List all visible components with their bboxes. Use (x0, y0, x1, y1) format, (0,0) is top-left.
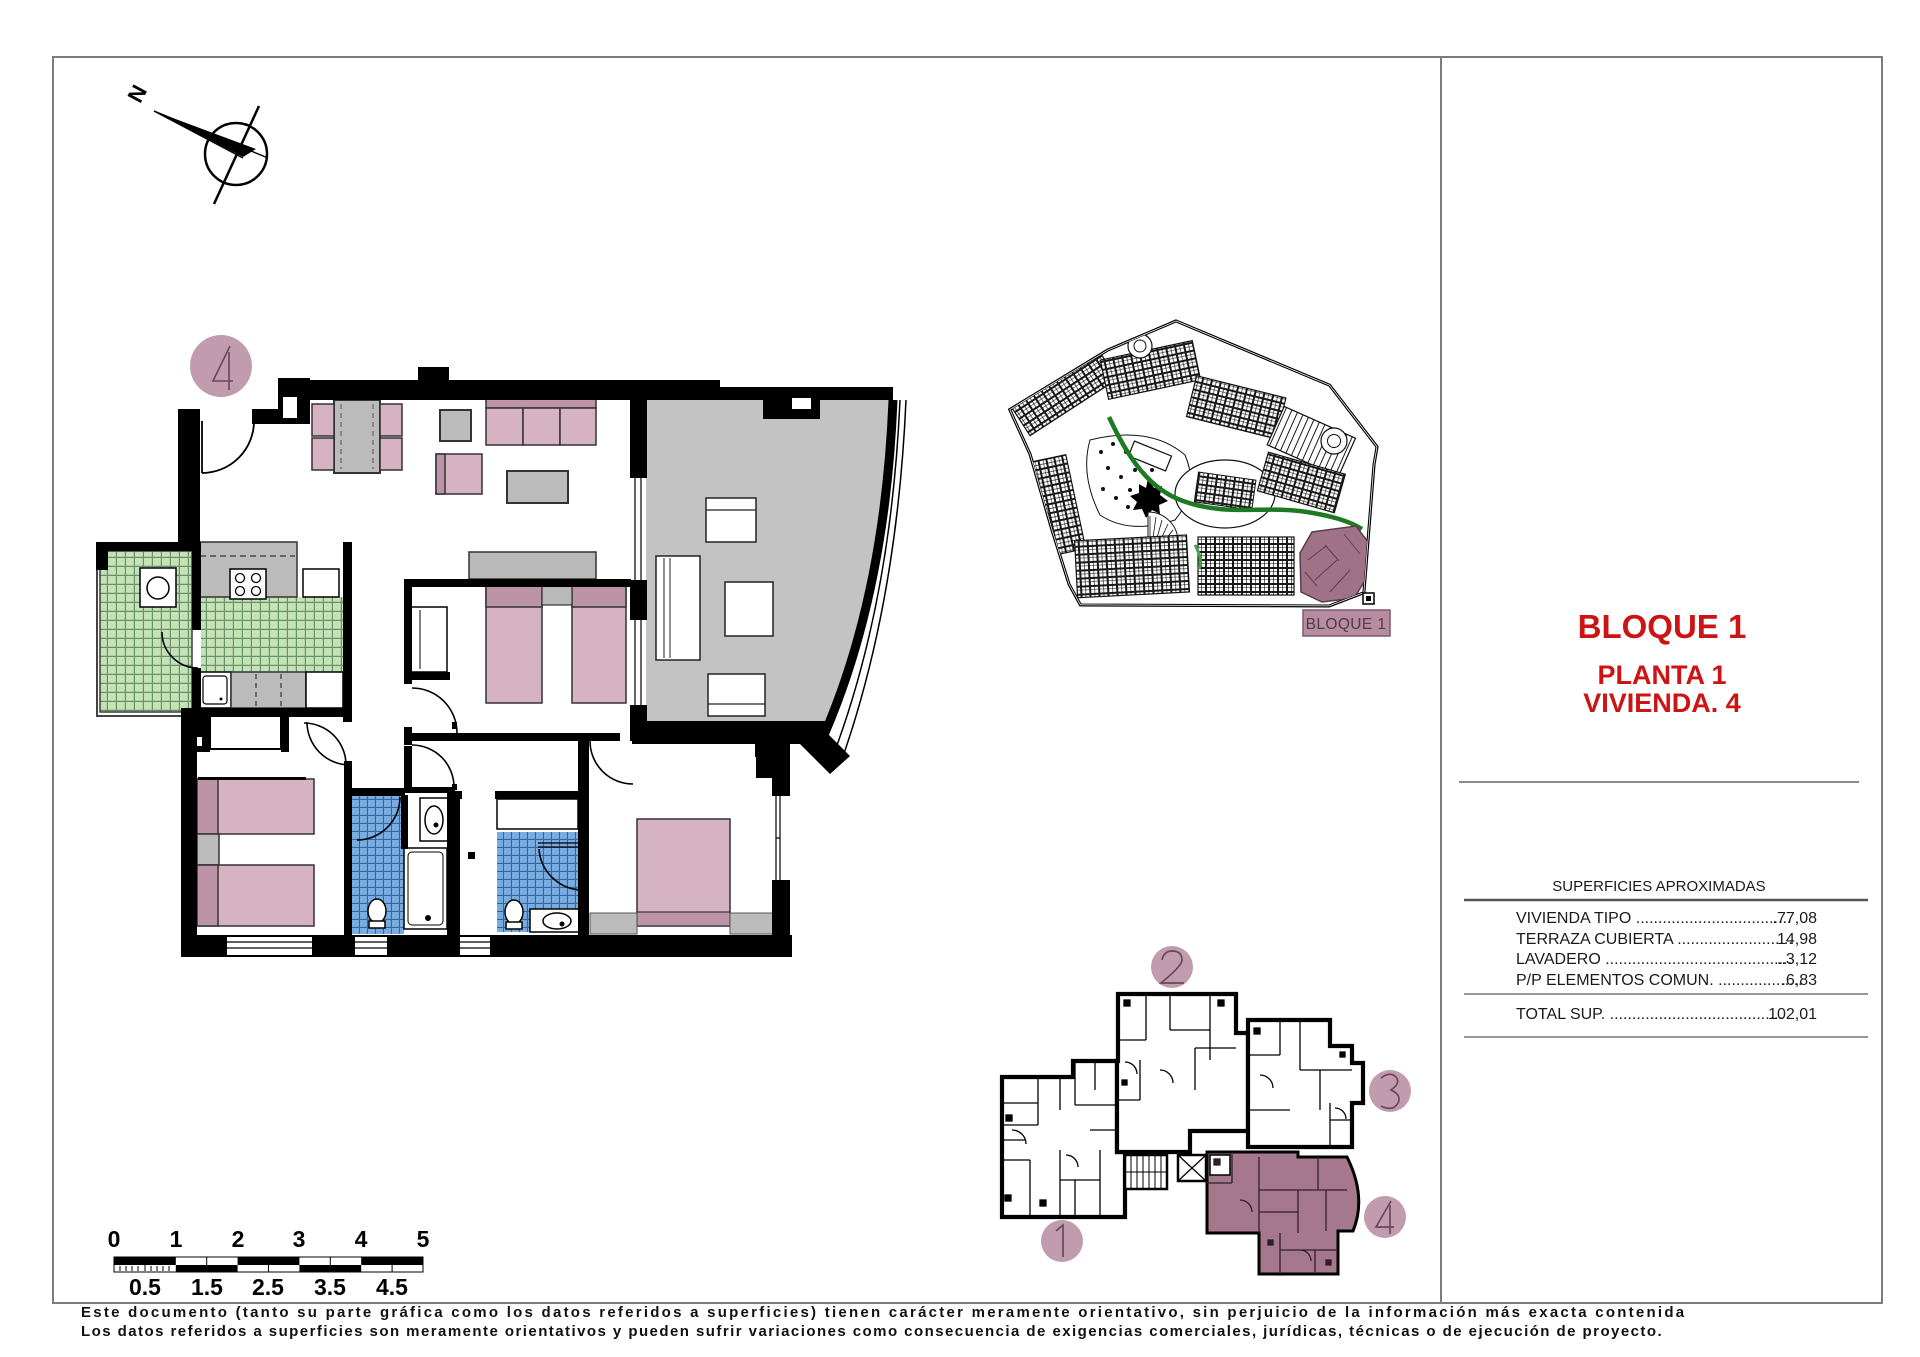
svg-text:TOTAL SUP. ...................: TOTAL SUP. .............................… (1516, 1006, 1783, 1023)
svg-text:Los datos referidos a superfic: Los datos referidos a superficies son me… (81, 1323, 1663, 1340)
svg-text:2: 2 (232, 1226, 245, 1252)
svg-text:Este documento (tanto su parte: Este documento (tanto su parte gráfica c… (81, 1304, 1686, 1321)
svg-text:4.5: 4.5 (376, 1274, 408, 1300)
svg-text:5: 5 (417, 1226, 430, 1252)
svg-text:TERRAZA CUBIERTA .............: TERRAZA CUBIERTA .......................… (1516, 931, 1793, 948)
svg-text:0: 0 (108, 1226, 121, 1252)
svg-text:VIVIENDA. 4: VIVIENDA. 4 (1583, 688, 1741, 718)
svg-text:0.5: 0.5 (129, 1274, 161, 1300)
svg-text:PLANTA 1: PLANTA 1 (1597, 660, 1726, 690)
svg-text:SUPERFICIES APROXIMADAS: SUPERFICIES APROXIMADAS (1552, 878, 1765, 895)
svg-text:BLOQUE 1: BLOQUE 1 (1306, 616, 1387, 633)
svg-text:1: 1 (170, 1226, 183, 1252)
svg-text:BLOQUE 1: BLOQUE 1 (1578, 608, 1747, 645)
svg-text:102,01: 102,01 (1768, 1006, 1817, 1023)
svg-text:14,98: 14,98 (1777, 931, 1817, 948)
svg-text:.6,83: .6,83 (1781, 972, 1817, 989)
svg-text:3.5: 3.5 (314, 1274, 346, 1300)
svg-text:2.5: 2.5 (252, 1274, 284, 1300)
svg-text:3: 3 (293, 1226, 306, 1252)
svg-text:P/P ELEMENTOS COMUN. .........: P/P ELEMENTOS COMUN. ................... (1516, 972, 1803, 989)
svg-text:..3,12: ..3,12 (1777, 951, 1817, 968)
svg-text:VIVIENDA TIPO ................: VIVIENDA TIPO ..........................… (1516, 910, 1791, 927)
svg-text:4: 4 (355, 1226, 368, 1252)
svg-text:LAVADERO .....................: LAVADERO ...............................… (1516, 951, 1792, 968)
svg-text:.77,08: .77,08 (1773, 910, 1818, 927)
svg-text:1.5: 1.5 (191, 1274, 223, 1300)
